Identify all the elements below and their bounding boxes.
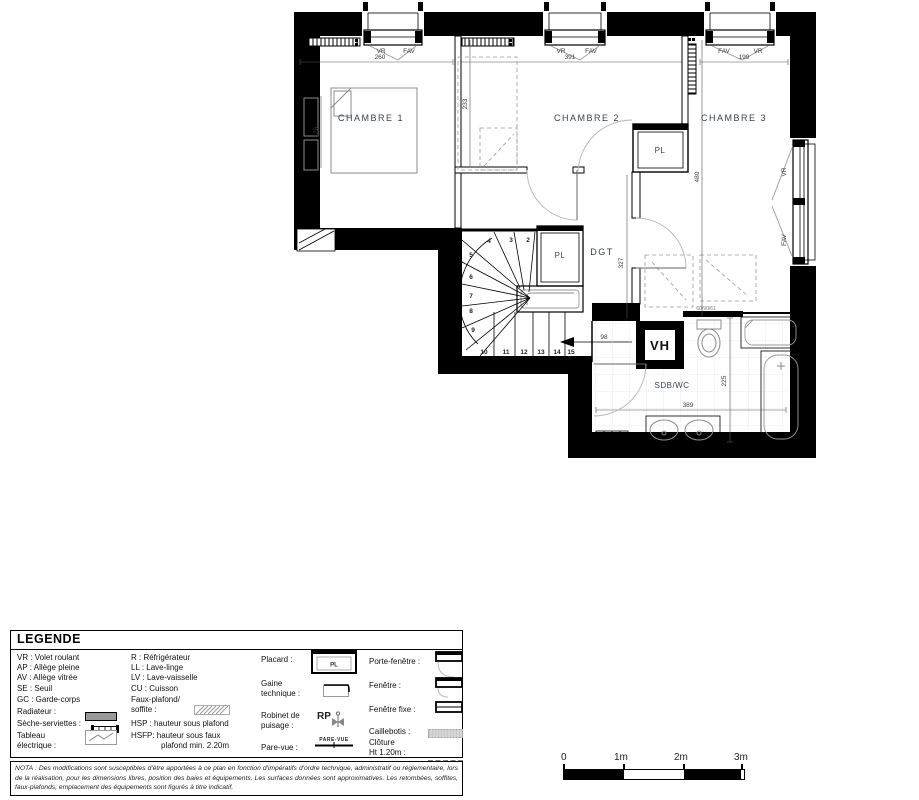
- dim-391: 391: [565, 54, 576, 61]
- soffit-hatch-symbol: [194, 703, 230, 721]
- legend-gaine-2: technique :: [261, 689, 300, 698]
- legend-faux-plafond-1: Faux-plafond/: [131, 695, 180, 704]
- dim-480: 480: [694, 171, 701, 182]
- pl1-label: PL: [655, 146, 666, 155]
- step-7: 7: [469, 293, 473, 300]
- gaine-symbol: [323, 683, 350, 703]
- step-11: 11: [503, 349, 510, 356]
- legend-faux-plafond-2: soffite :: [131, 705, 157, 714]
- legend-hsfp-2: plafond min. 2.20m: [161, 741, 229, 750]
- scale-bar-track: [563, 769, 745, 780]
- chambre2-label: CHAMBRE 2: [554, 113, 620, 123]
- step-12: 12: [520, 349, 528, 356]
- step-13: 13: [537, 349, 545, 356]
- step-4: 4: [487, 238, 491, 245]
- window2-fav-label: FAV: [585, 48, 597, 55]
- bathroom: VH: [594, 306, 801, 444]
- step-2: 2: [526, 237, 530, 244]
- rp-symbol-text: RP: [317, 711, 331, 722]
- dim-126: 126: [313, 126, 320, 137]
- legend-robinet-1: Robinet de: [261, 711, 300, 720]
- legend-robinet-2: puisage :: [261, 721, 293, 730]
- legend-vr: VR : Volet roulant: [17, 653, 79, 662]
- legend-tableau-2: électrique :: [17, 741, 56, 750]
- fixture-note: 60/90/61: [696, 306, 716, 312]
- placard-symbol-text: PL: [330, 663, 338, 669]
- step-15: 15: [567, 349, 575, 356]
- window3-fav-label: FAV: [718, 48, 730, 55]
- floor-plan: VR FAV 260 VR FAV 391 FAV: [0, 0, 919, 625]
- scale-segment-white: [624, 770, 684, 779]
- scale-segment-black-1: [564, 770, 624, 779]
- window1-fav-label: FAV: [403, 48, 415, 55]
- legend-cloture-2: Ht 1.20m :: [369, 748, 406, 757]
- legend-parevue: Pare-vue :: [261, 743, 298, 752]
- legend-se: SE : Seuil: [17, 684, 52, 693]
- step-9: 9: [471, 327, 475, 334]
- legend-gc: GC : Garde-corps: [17, 695, 80, 704]
- step-5: 5: [469, 252, 473, 259]
- dgt-label: DGT: [590, 247, 614, 257]
- dim-389: 389: [683, 402, 694, 409]
- legend-divider: [11, 649, 462, 650]
- vh-label-text: VH: [650, 338, 670, 353]
- legend-cu: CU : Cuisson: [131, 684, 178, 693]
- step-10: 10: [480, 349, 488, 356]
- dim-327: 327: [618, 257, 625, 268]
- window-east-fav-label: FAV: [781, 233, 788, 245]
- wall-sdb-north-thick: [592, 303, 640, 321]
- legend-tableau-1: Tableau: [17, 731, 45, 740]
- window-east-vr-label: VR: [781, 167, 788, 176]
- chambre1-label: CHAMBRE 1: [338, 113, 404, 123]
- scale-label-0: 0: [561, 752, 567, 763]
- legend-placard: Placard :: [261, 655, 293, 664]
- step-6: 6: [469, 274, 473, 281]
- step-8: 8: [469, 308, 473, 315]
- wall-ch2-ch3: [682, 36, 688, 126]
- caillebotis-symbol: [428, 725, 463, 743]
- legend-seche-serviettes: Sèche-serviettes :: [17, 719, 81, 728]
- scale-label-2m: 2m: [674, 752, 688, 763]
- dim-260: 260: [375, 54, 386, 61]
- sdb-label: SDB/WC: [655, 381, 690, 390]
- scale-segment-black-2: [684, 770, 741, 779]
- window3-vr-label: VR: [753, 48, 762, 55]
- closet-chambre2: PL: [633, 124, 688, 172]
- pl2-label: PL: [555, 251, 566, 260]
- robinet-symbol: RP: [317, 711, 345, 729]
- nota-text: NOTA : Des modifications sont susceptibl…: [15, 765, 458, 791]
- step-14: 14: [553, 349, 561, 356]
- dim-233: 233: [462, 98, 469, 109]
- legend-cloture-1: Clôture: [369, 738, 395, 747]
- scale-label-3m: 3m: [734, 752, 748, 763]
- wall-ch3-west-a: [632, 172, 640, 218]
- legend-caillebotis: Caillebotis :: [369, 727, 410, 736]
- legend-lv: LV : Lave-vaisselle: [131, 673, 198, 682]
- legend-fenetre-fixe: Fenêtre fixe :: [369, 705, 416, 714]
- legend-porte-fenetre: Porte-fenêtre :: [369, 657, 420, 666]
- legend-fenetre: Fenêtre :: [369, 681, 401, 690]
- legend-ap: AP : Allège pleine: [17, 663, 80, 672]
- fenetre-fixe-symbol: [435, 701, 463, 719]
- legend-r: R : Réfrigérateur: [131, 653, 190, 662]
- fenetre-symbol: [435, 677, 463, 704]
- placard-symbol: PL: [311, 649, 357, 679]
- step-3: 3: [509, 237, 513, 244]
- legend-radiateur: Radiateur :: [17, 707, 56, 716]
- legend-hsfp-1: HSFP: hauteur sous faux: [131, 731, 220, 740]
- legend-gaine-1: Gaine: [261, 679, 282, 688]
- legend-box: LEGENDE VR : Volet roulant AP : Allège p…: [10, 630, 463, 758]
- electrical-panel: [297, 229, 335, 251]
- legend-av: AV : Allège vitrée: [17, 673, 77, 682]
- dim-199: 199: [739, 54, 750, 61]
- nota-box: NOTA : Des modifications sont susceptibl…: [10, 761, 463, 796]
- radiator-chambre1: [308, 38, 360, 46]
- wall-ch3-west-b: [632, 268, 640, 304]
- scale-label-1m: 1m: [614, 752, 628, 763]
- legend-ll: LL : Lave-linge: [131, 663, 183, 672]
- electrical-panel-symbol: [85, 730, 117, 750]
- dim-225: 225: [721, 375, 728, 386]
- chambre3-label: CHAMBRE 3: [701, 113, 767, 123]
- scale-bar: 0 1m 2m 3m: [563, 752, 747, 786]
- parevue-symbol: PARE-VUE: [315, 735, 353, 754]
- legend-title: LEGENDE: [17, 632, 81, 646]
